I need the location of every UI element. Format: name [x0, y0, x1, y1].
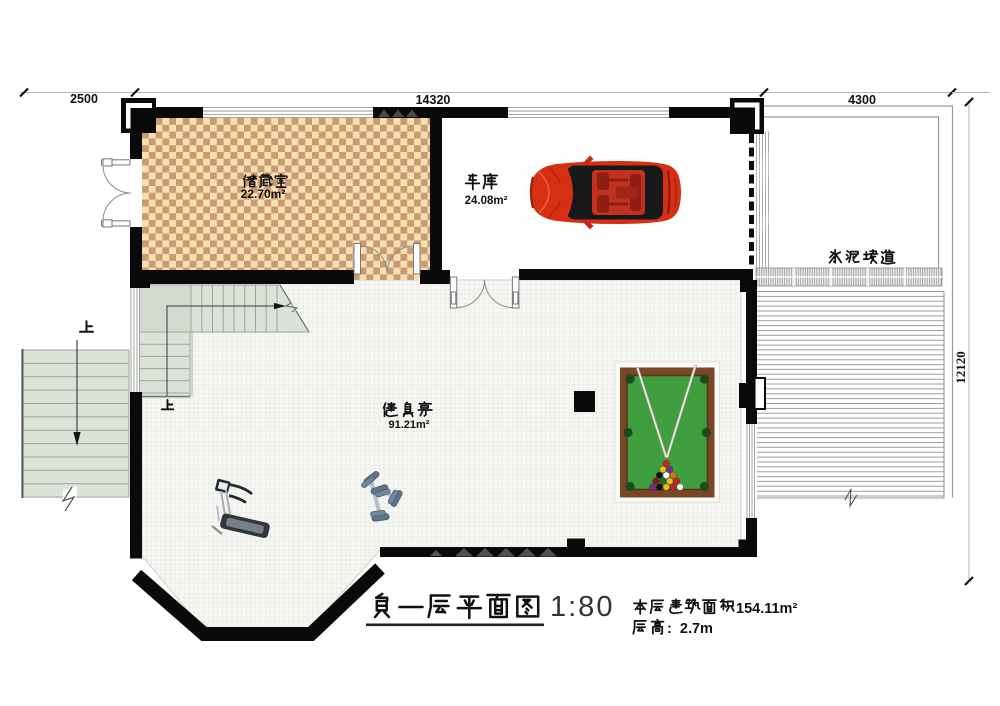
svg-text:24.08m²: 24.08m² — [465, 195, 508, 207]
svg-text:1:80: 1:80 — [550, 591, 614, 623]
svg-text:154.11m²: 154.11m² — [736, 601, 797, 617]
svg-text:12120: 12120 — [953, 351, 968, 384]
svg-text:2500: 2500 — [70, 92, 98, 106]
svg-text:22.70m²: 22.70m² — [241, 187, 286, 201]
svg-text:4300: 4300 — [848, 93, 876, 107]
svg-text:: 2.7m: : 2.7m — [667, 621, 713, 637]
svg-text:91.21m²: 91.21m² — [389, 419, 430, 431]
svg-text:14320: 14320 — [416, 93, 451, 107]
